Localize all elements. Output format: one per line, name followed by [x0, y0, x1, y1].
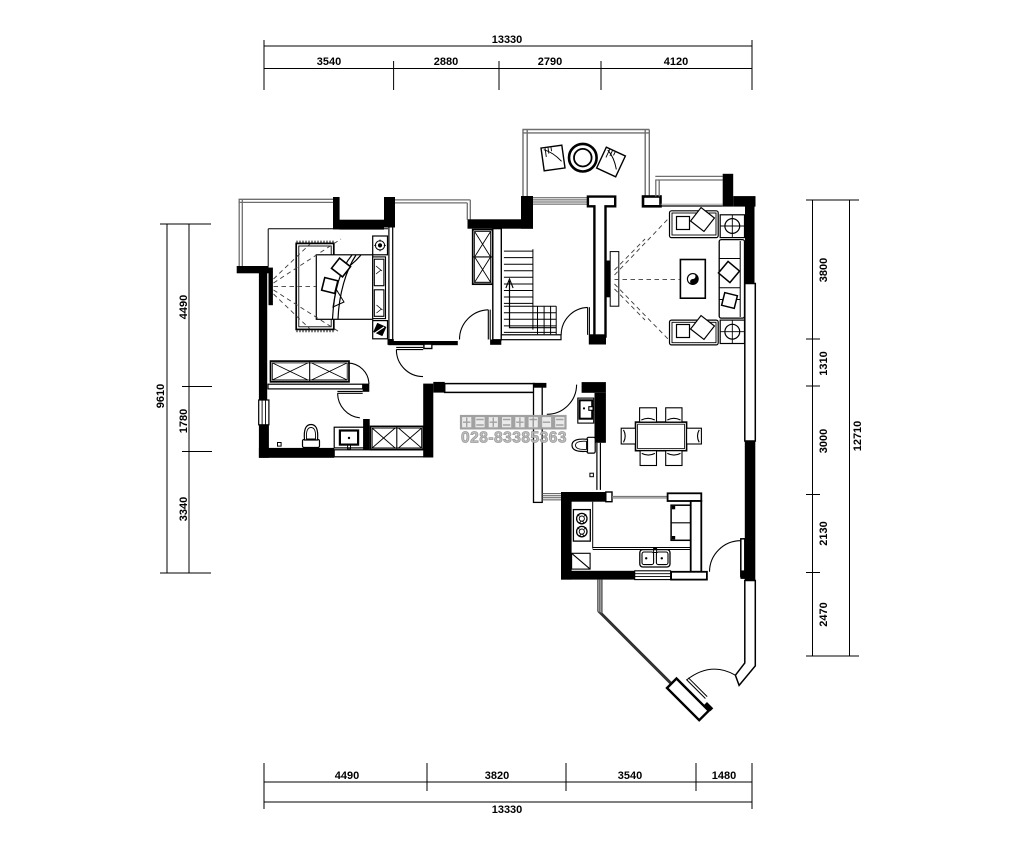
svg-text:028-83385363: 028-83385363 — [461, 430, 567, 447]
svg-text:3340: 3340 — [178, 497, 190, 521]
svg-text:3000: 3000 — [818, 429, 830, 453]
svg-text:2470: 2470 — [818, 602, 830, 626]
svg-text:13330: 13330 — [492, 34, 523, 46]
svg-text:3800: 3800 — [818, 258, 830, 282]
svg-text:3820: 3820 — [485, 770, 509, 782]
svg-text:1310: 1310 — [818, 351, 830, 375]
svg-text:2790: 2790 — [538, 56, 562, 68]
svg-text:13330: 13330 — [492, 804, 523, 816]
svg-text:4490: 4490 — [178, 295, 190, 319]
svg-text:3540: 3540 — [317, 56, 341, 68]
svg-text:1480: 1480 — [712, 770, 736, 782]
svg-text:9610: 9610 — [155, 384, 167, 408]
svg-text:2130: 2130 — [818, 521, 830, 545]
svg-text:1780: 1780 — [178, 409, 190, 433]
svg-text:4120: 4120 — [664, 56, 688, 68]
svg-text:4490: 4490 — [335, 770, 359, 782]
svg-text:3540: 3540 — [618, 770, 642, 782]
svg-text:2880: 2880 — [434, 56, 458, 68]
svg-text:12710: 12710 — [852, 421, 864, 452]
